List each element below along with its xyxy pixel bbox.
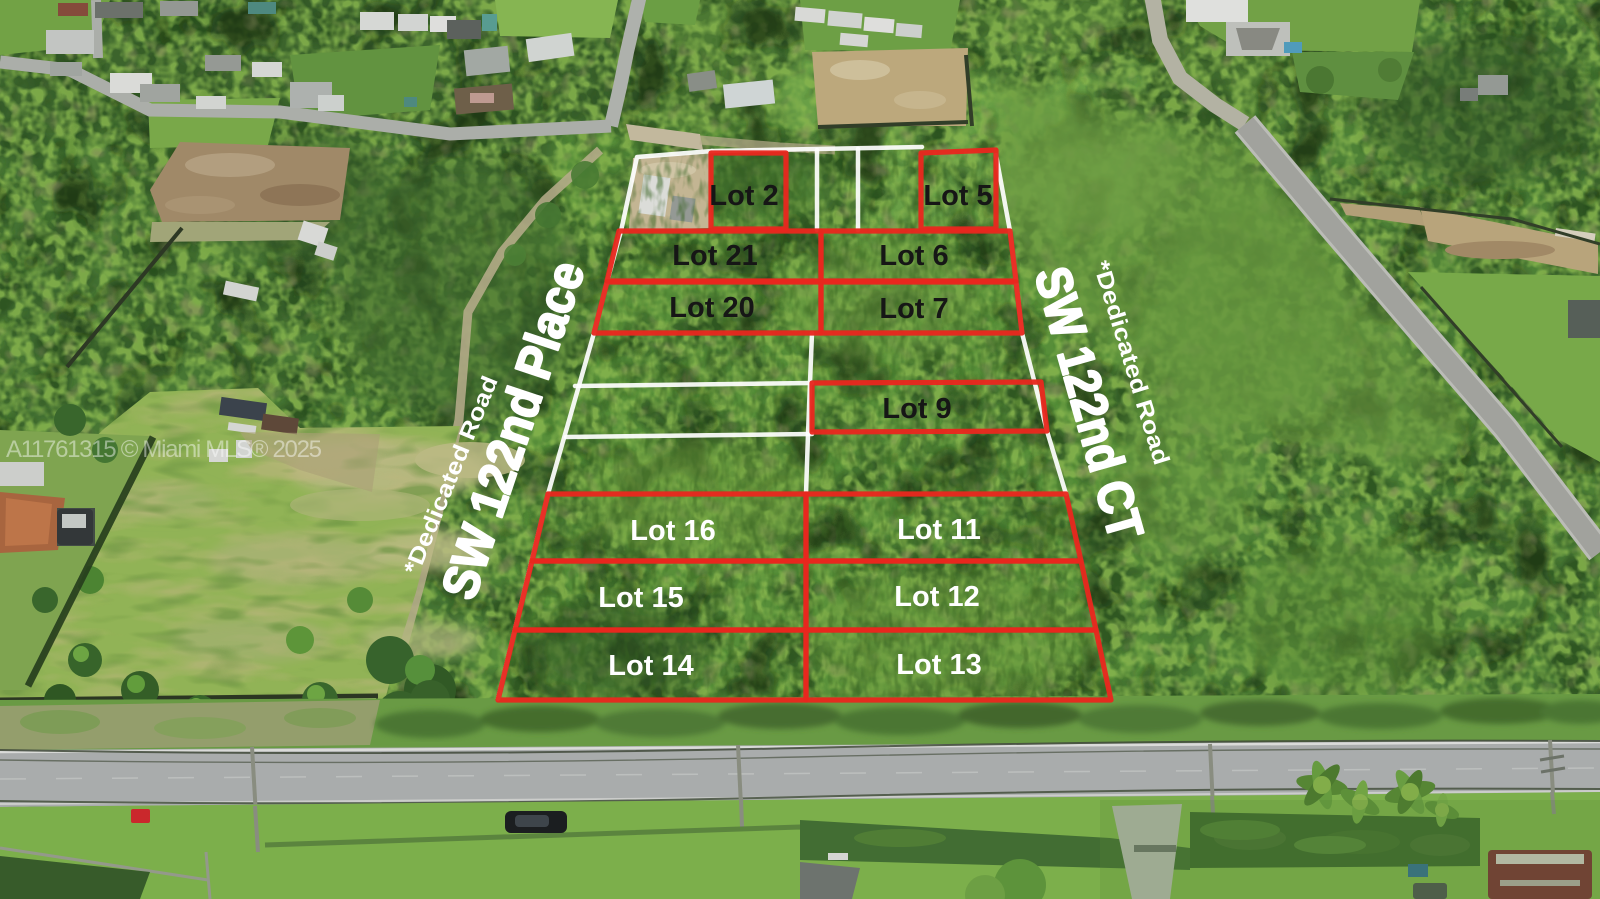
svg-text:Lot 2: Lot 2: [709, 180, 778, 212]
svg-text:Lot 6: Lot 6: [879, 240, 948, 272]
svg-text:A11761315 © Miami MLS® 2025: A11761315 © Miami MLS® 2025: [6, 436, 322, 463]
svg-text:Lot 11: Lot 11: [897, 514, 981, 546]
svg-text:Lot 12: Lot 12: [894, 581, 979, 613]
svg-text:Lot 5: Lot 5: [923, 180, 992, 212]
svg-text:Lot 16: Lot 16: [630, 515, 715, 547]
svg-text:Lot 7: Lot 7: [879, 293, 948, 325]
svg-text:Lot 20: Lot 20: [669, 292, 754, 324]
svg-text:Lot 13: Lot 13: [896, 649, 981, 681]
svg-text:Lot 21: Lot 21: [672, 240, 757, 272]
svg-text:Lot 9: Lot 9: [882, 393, 951, 425]
svg-text:Lot 15: Lot 15: [598, 582, 683, 614]
svg-text:Lot 14: Lot 14: [608, 650, 693, 682]
